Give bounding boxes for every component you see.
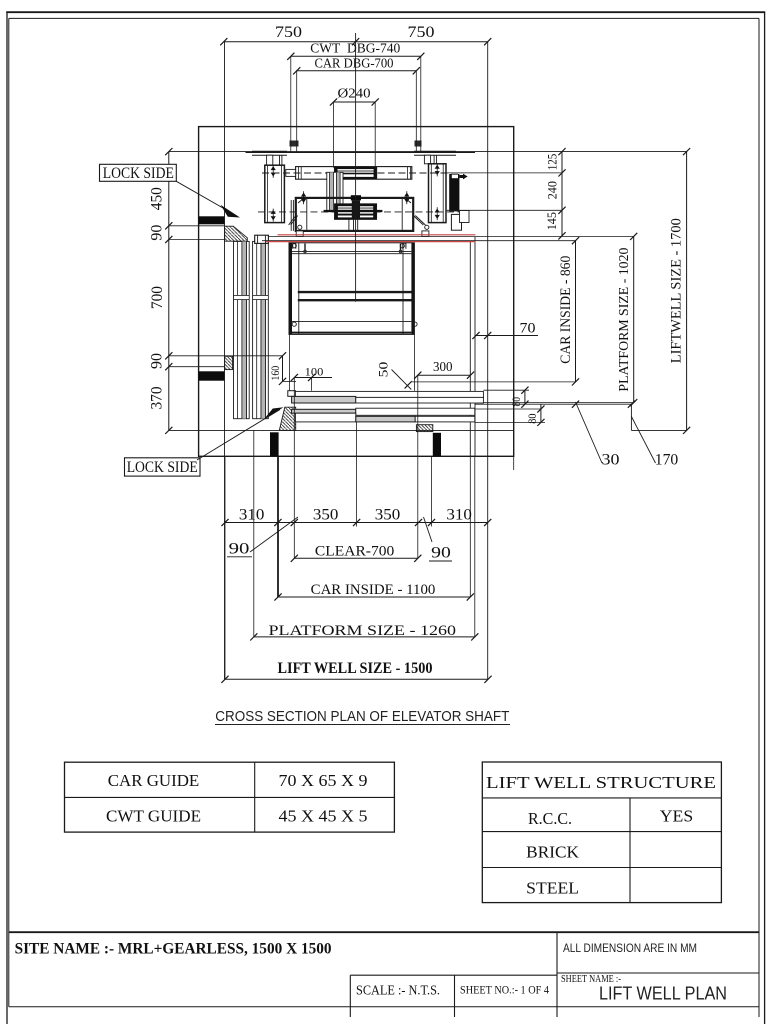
svg-text:CAR INSIDE - 1100: CAR INSIDE - 1100 [311,582,436,598]
svg-text:350: 350 [375,506,401,523]
svg-text:LIFT WELL STRUCTURE: LIFT WELL STRUCTURE [486,773,716,792]
svg-text:PLATFORM SIZE - 1260: PLATFORM SIZE - 1260 [269,623,457,639]
svg-text:350: 350 [313,506,339,523]
svg-text:70 X 65 X 9: 70 X 65 X 9 [279,771,368,790]
svg-text:50: 50 [376,362,391,378]
svg-text:80: 80 [509,397,523,407]
svg-text:CAR GUIDE: CAR GUIDE [108,771,200,790]
svg-text:R.C.C.: R.C.C. [528,809,572,828]
svg-text:90: 90 [229,541,250,558]
svg-text:CAR DBG-700: CAR DBG-700 [315,56,394,71]
svg-text:LIFTWELL SIZE - 1700: LIFTWELL SIZE - 1700 [669,218,685,363]
svg-text:160: 160 [270,366,282,381]
svg-text:45 X 45 X 5: 45 X 45 X 5 [279,807,368,826]
svg-text:450: 450 [149,187,166,210]
svg-text:90: 90 [149,353,166,369]
svg-text:240: 240 [545,181,560,199]
svg-text:70: 70 [520,321,536,337]
svg-text:750: 750 [408,24,435,41]
svg-text:CLEAR-700: CLEAR-700 [315,544,394,560]
svg-text:90: 90 [149,225,166,241]
svg-text:145: 145 [544,212,559,230]
svg-text:LIFT WELL SIZE - 1500: LIFT WELL SIZE - 1500 [278,660,433,677]
svg-text:100: 100 [305,365,324,379]
svg-text:310: 310 [239,506,265,523]
svg-text:SITE NAME :- MRL+GEARLESS, 150: SITE NAME :- MRL+GEARLESS, 1500 X 1500 [15,941,332,958]
svg-text:300: 300 [433,359,453,374]
svg-text:LOCK SIDE: LOCK SIDE [127,459,198,476]
svg-text:90: 90 [431,545,451,562]
svg-text:LIFT WELL PLAN: LIFT WELL PLAN [599,984,727,1004]
svg-text:125: 125 [545,154,560,171]
svg-text:SCALE :- N.T.S.: SCALE :- N.T.S. [356,983,440,998]
svg-text:700: 700 [149,286,166,309]
svg-text:PLATFORM SIZE - 1020: PLATFORM SIZE - 1020 [616,247,631,391]
svg-text:YES: YES [660,807,693,826]
svg-text:STEEL: STEEL [526,879,579,898]
svg-text:SHEET NO.:- 1 OF 4: SHEET NO.:- 1 OF 4 [460,985,549,997]
svg-text:170: 170 [655,452,679,469]
svg-text:CAR INSIDE - 860: CAR INSIDE - 860 [558,256,574,364]
svg-text:BRICK: BRICK [526,843,580,862]
svg-text:Ø240: Ø240 [338,87,371,102]
svg-text:750: 750 [275,24,302,41]
svg-text:LOCK SIDE: LOCK SIDE [103,165,174,182]
svg-text:30: 30 [602,452,620,469]
svg-text:ALL DIMENSION ARE IN MM: ALL DIMENSION ARE IN MM [563,941,697,955]
svg-text:CWT GUIDE: CWT GUIDE [106,807,201,826]
svg-text:310: 310 [446,506,472,523]
svg-text:370: 370 [149,387,166,410]
svg-text:CROSS SECTION PLAN OF ELEVATOR: CROSS SECTION PLAN OF ELEVATOR SHAFT [215,708,509,725]
svg-text:80: 80 [525,414,539,424]
